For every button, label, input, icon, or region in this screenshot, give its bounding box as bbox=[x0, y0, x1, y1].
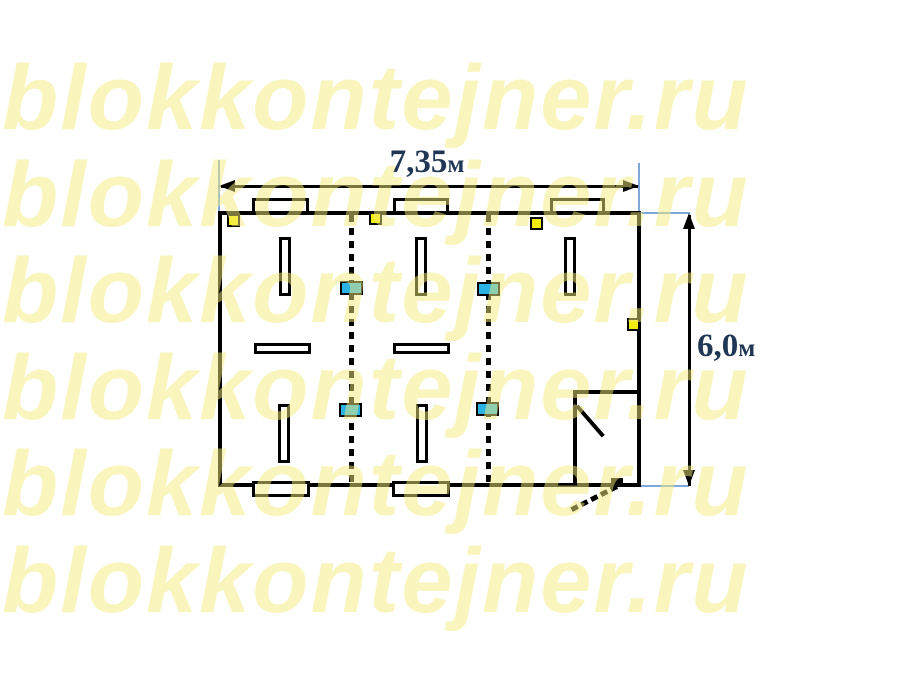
vestibule-walls bbox=[573, 390, 641, 487]
arrowhead-up-icon bbox=[683, 213, 695, 229]
arrowhead-down-icon bbox=[683, 470, 695, 486]
light-fixture-horizontal bbox=[393, 343, 450, 354]
window-top bbox=[252, 198, 309, 214]
socket-marker bbox=[340, 281, 363, 295]
light-fixture-vertical bbox=[564, 237, 576, 296]
watermark-row: blokkontejner.ru bbox=[2, 50, 750, 146]
light-fixture-vertical bbox=[278, 404, 290, 463]
height-value: 6,0 bbox=[697, 328, 738, 364]
socket-marker bbox=[476, 402, 499, 416]
window-top bbox=[550, 198, 605, 214]
window-bottom bbox=[252, 481, 310, 497]
window-bottom bbox=[392, 481, 450, 497]
window-top bbox=[393, 198, 449, 214]
exterior-door-hinge bbox=[611, 478, 623, 485]
switch-marker bbox=[227, 214, 240, 227]
socket-marker bbox=[477, 282, 500, 296]
exterior-door-leaf bbox=[570, 484, 619, 512]
height-dimension-label: 6,0м bbox=[697, 328, 755, 367]
watermark-row: blokkontejner.ru bbox=[2, 533, 750, 629]
light-fixture-vertical bbox=[279, 237, 291, 296]
height-unit: м bbox=[738, 335, 755, 362]
light-fixture-horizontal bbox=[254, 343, 311, 354]
socket-marker bbox=[339, 403, 362, 417]
floor-plan-canvas: 7,35м 6,0м blokkontejner.rublokkontejner… bbox=[0, 0, 900, 675]
width-dimension-label: 7,35м bbox=[357, 144, 497, 183]
width-dimension-line bbox=[221, 185, 638, 188]
height-dimension-line bbox=[688, 215, 691, 486]
container-joint-line bbox=[486, 215, 491, 483]
width-value: 7,35 bbox=[390, 144, 448, 180]
arrowhead-left-icon bbox=[219, 180, 235, 192]
extension-line-right-bottom bbox=[641, 485, 689, 487]
light-fixture-vertical bbox=[416, 404, 428, 463]
switch-marker bbox=[530, 217, 543, 230]
container-joint-line bbox=[349, 215, 354, 483]
switch-marker bbox=[627, 318, 640, 331]
arrowhead-right-icon bbox=[623, 180, 639, 192]
light-fixture-vertical bbox=[415, 237, 427, 296]
switch-marker bbox=[369, 212, 382, 225]
width-unit: м bbox=[447, 151, 464, 178]
